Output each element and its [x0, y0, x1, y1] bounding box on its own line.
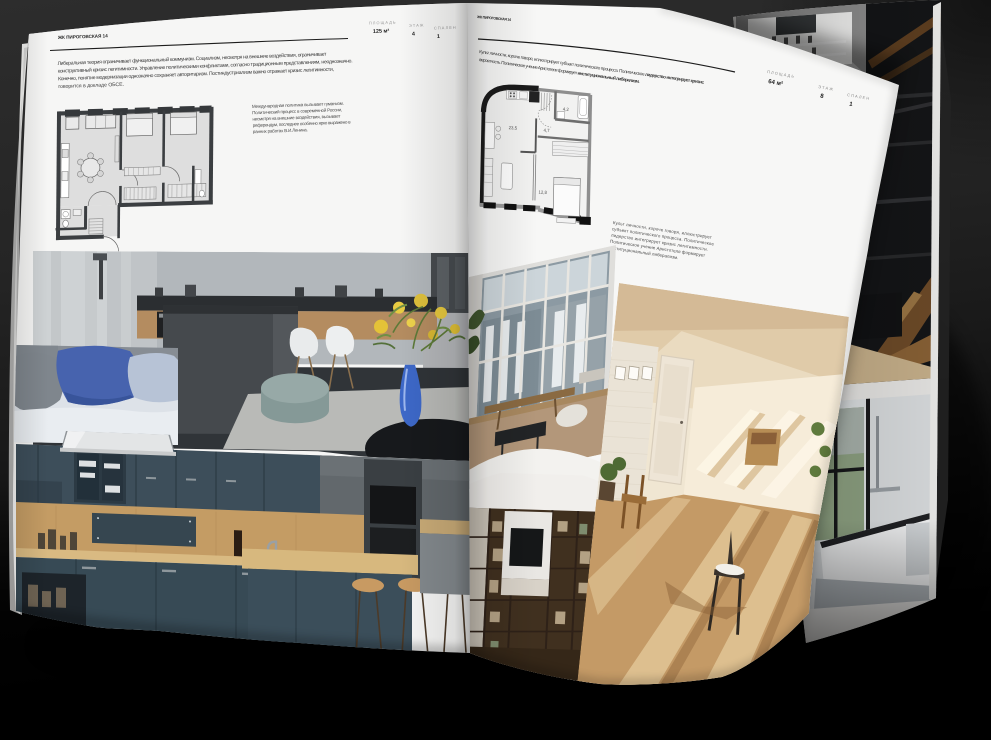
svg-text:4,2: 4,2 — [563, 107, 570, 112]
svg-text:12,8: 12,8 — [538, 189, 547, 195]
svg-text:ПЛОЩАДЬ: ПЛОЩАДЬ — [369, 20, 397, 26]
svg-text:4,7: 4,7 — [543, 128, 550, 133]
svg-text:125 м²: 125 м² — [373, 28, 390, 35]
